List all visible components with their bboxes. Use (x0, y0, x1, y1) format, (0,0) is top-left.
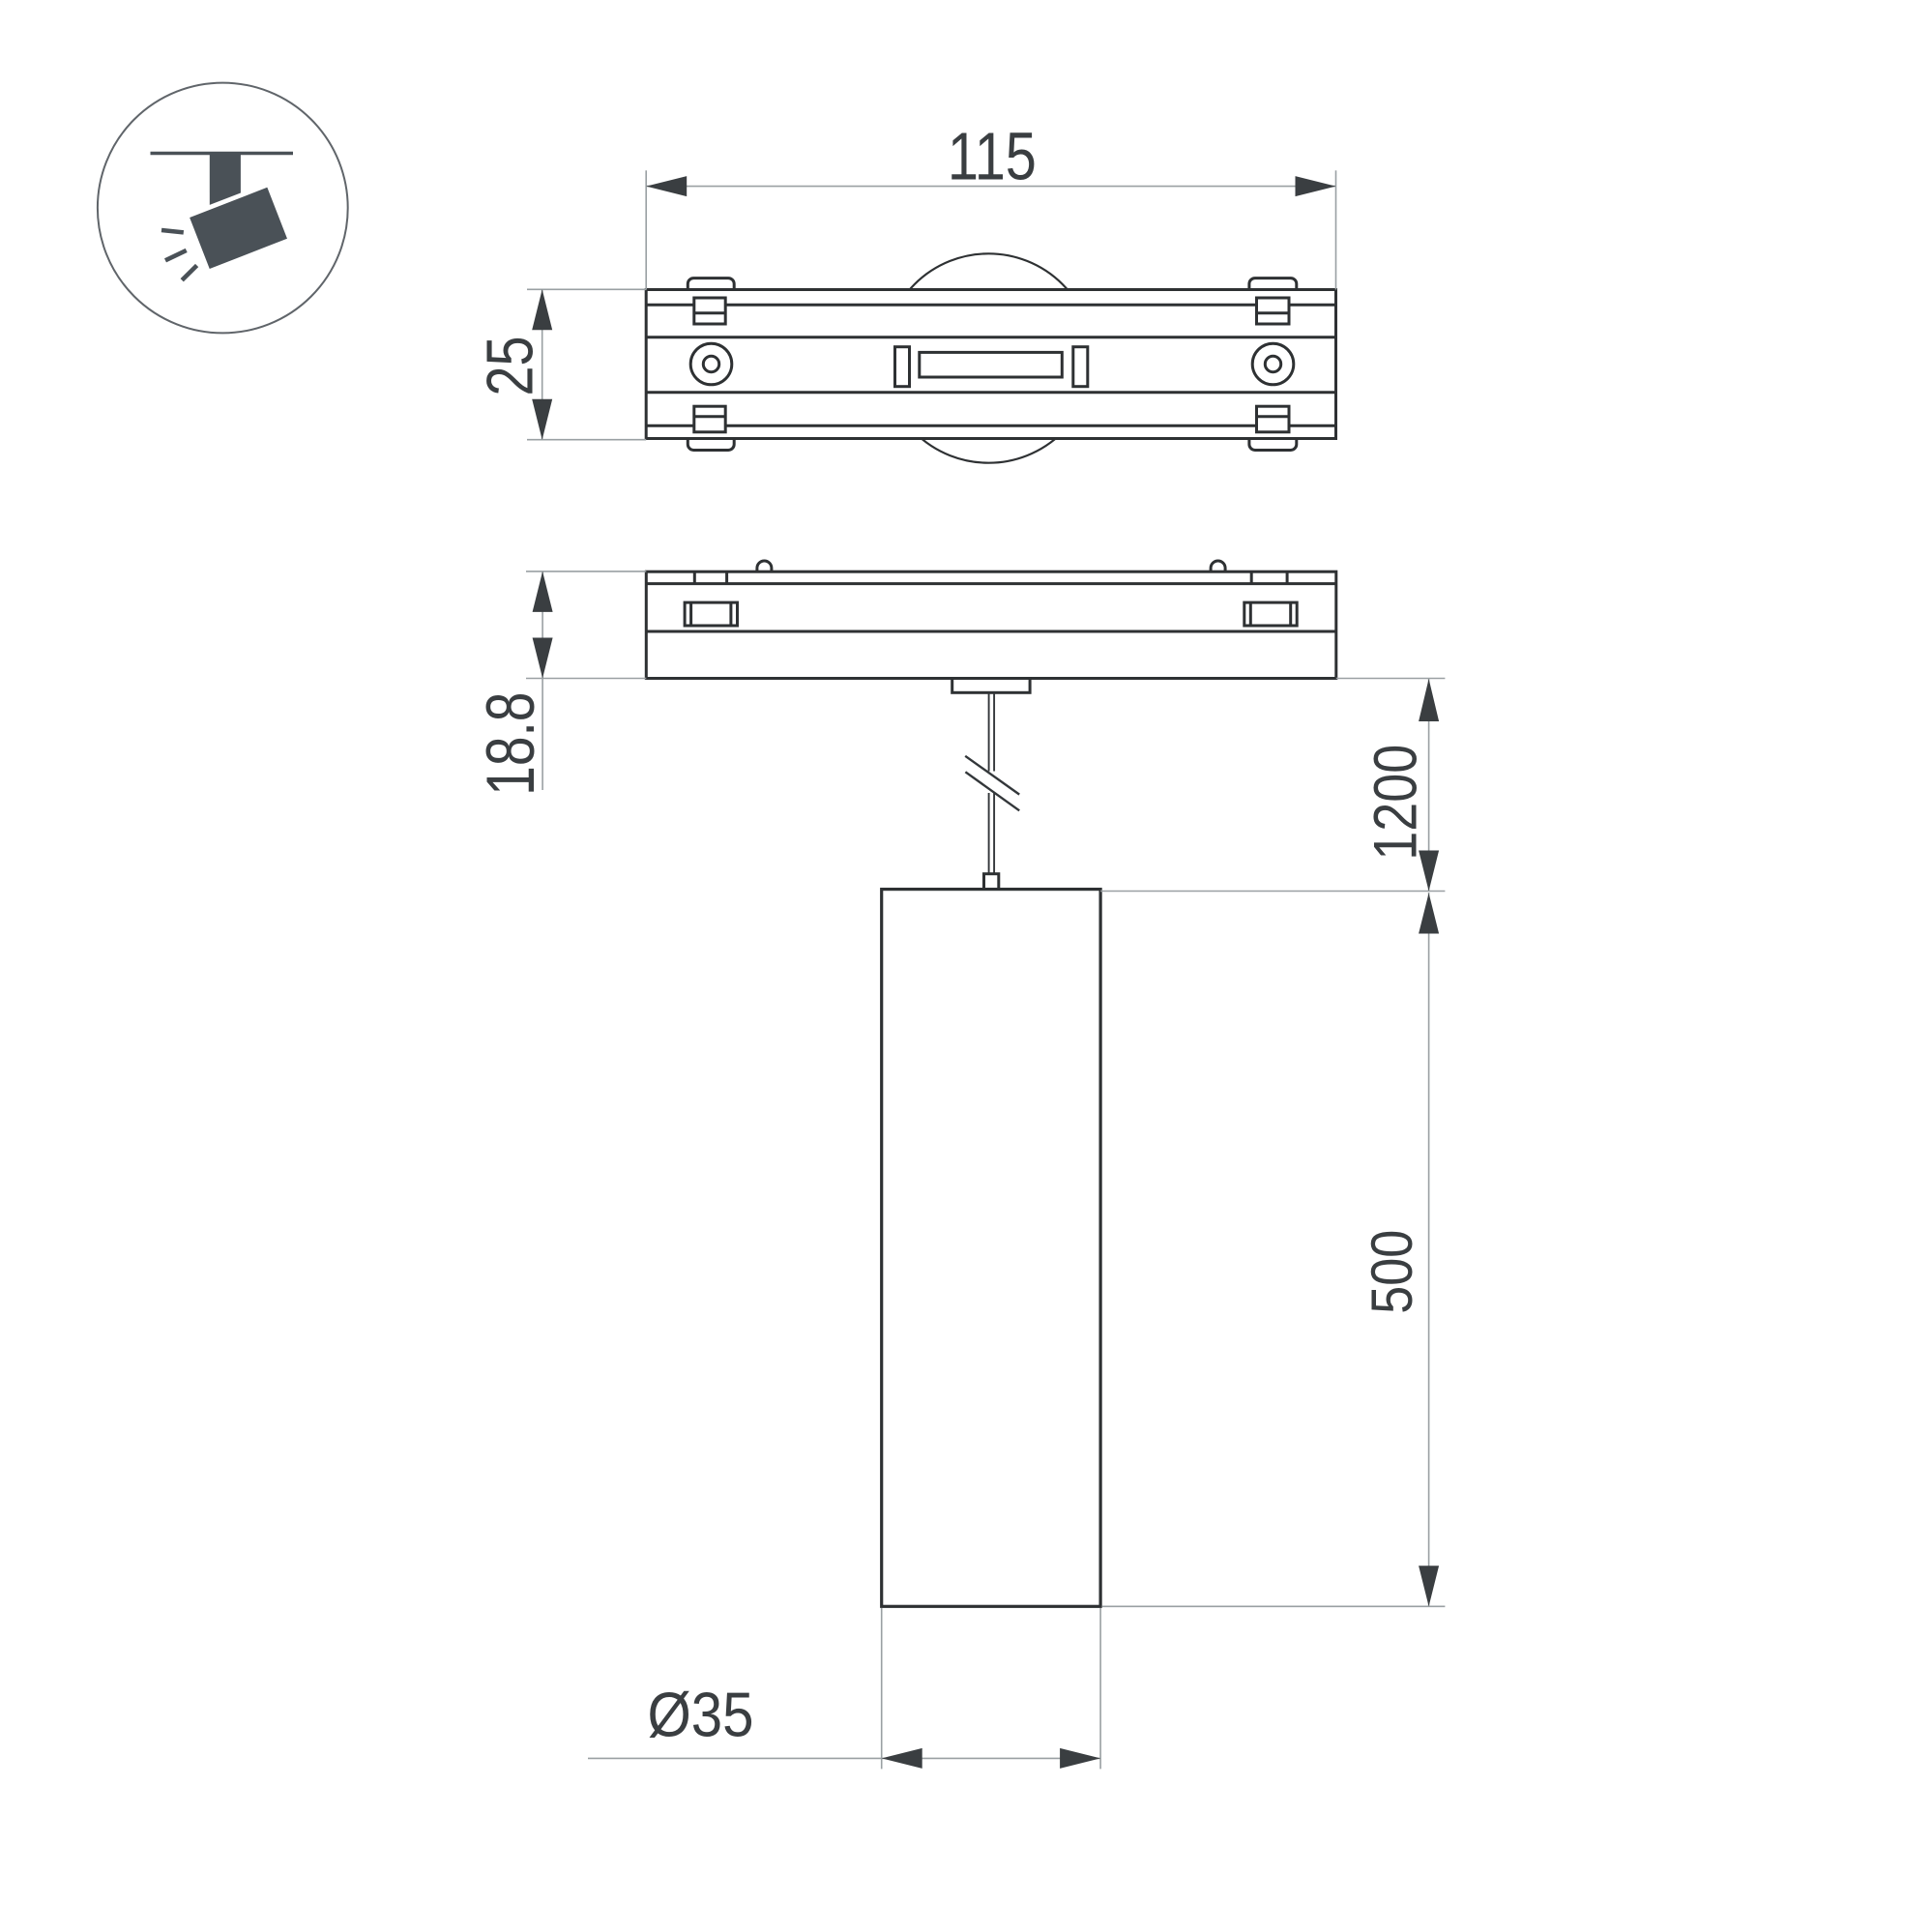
svg-text:25: 25 (475, 337, 547, 396)
svg-text:115: 115 (948, 118, 1037, 193)
svg-text:Ø35: Ø35 (648, 1680, 754, 1750)
svg-text:18.8: 18.8 (472, 692, 548, 796)
svg-text:500: 500 (1360, 1230, 1424, 1314)
svg-text:1200: 1200 (1361, 745, 1429, 861)
